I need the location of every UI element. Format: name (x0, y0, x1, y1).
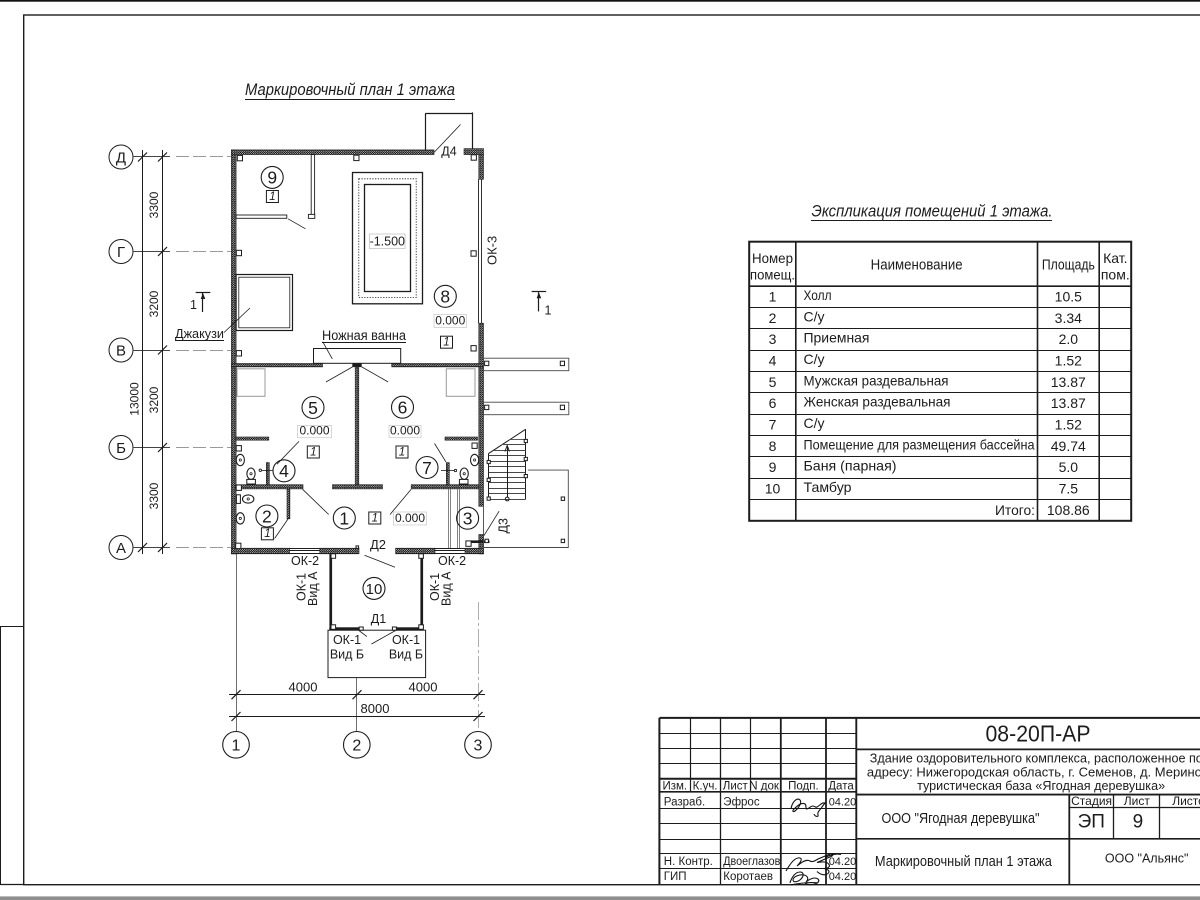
svg-text:9: 9 (1133, 812, 1144, 833)
svg-text:1: 1 (264, 528, 270, 540)
svg-text:4000: 4000 (409, 679, 438, 694)
svg-text:3300: 3300 (147, 482, 161, 509)
svg-text:Джакузи: Джакузи (175, 327, 224, 341)
svg-text:3200: 3200 (147, 290, 161, 317)
svg-text:3: 3 (769, 331, 777, 347)
svg-text:04.20: 04.20 (829, 871, 857, 883)
svg-text:ГИП: ГИП (664, 871, 687, 883)
svg-text:0.000: 0.000 (435, 314, 465, 328)
svg-text:10.5: 10.5 (1055, 289, 1082, 305)
svg-text:7: 7 (769, 416, 777, 432)
svg-text:Мужская раздевальная: Мужская раздевальная (804, 372, 949, 388)
svg-text:Тамбур: Тамбур (804, 479, 852, 495)
svg-text:13000: 13000 (128, 382, 142, 416)
svg-text:04.20: 04.20 (829, 797, 857, 809)
svg-text:Г: Г (117, 244, 125, 261)
svg-text:6: 6 (769, 395, 777, 411)
svg-text:Наименование: Наименование (871, 257, 963, 274)
svg-text:Д3: Д3 (497, 518, 511, 533)
svg-text:04.20: 04.20 (829, 856, 857, 868)
svg-text:6: 6 (398, 398, 408, 418)
svg-text:Разраб.: Разраб. (664, 797, 705, 809)
svg-text:2: 2 (262, 506, 272, 526)
svg-text:Эфрос: Эфрос (723, 797, 760, 809)
svg-text:-1.500: -1.500 (370, 235, 405, 249)
svg-text:Номер: Номер (752, 250, 793, 266)
svg-text:1.52: 1.52 (1055, 416, 1082, 432)
svg-text:Б: Б (116, 440, 126, 457)
svg-text:0.000: 0.000 (299, 424, 329, 438)
svg-text:10: 10 (366, 581, 383, 598)
svg-text:пом.: пом. (1101, 267, 1130, 283)
svg-text:5: 5 (769, 374, 777, 390)
svg-text:1: 1 (339, 508, 349, 528)
svg-text:Подп.: Подп. (788, 780, 819, 792)
svg-text:Маркировочный план 1 этажа: Маркировочный план 1 этажа (245, 80, 455, 99)
svg-text:Д1: Д1 (371, 612, 386, 626)
svg-text:49.74: 49.74 (1051, 438, 1086, 454)
svg-text:1: 1 (769, 289, 777, 305)
svg-text:С/у: С/у (804, 415, 825, 431)
svg-text:3200: 3200 (147, 386, 161, 413)
svg-text:Дата: Дата (828, 780, 854, 792)
svg-text:5: 5 (308, 398, 318, 418)
svg-text:Лист: Лист (723, 780, 749, 792)
svg-text:N док.: N док. (749, 780, 782, 792)
svg-text:8: 8 (440, 287, 450, 307)
svg-text:Помещение для размещения бассе: Помещение для размещения бассейна (804, 436, 1035, 452)
svg-text:Д4: Д4 (441, 144, 456, 158)
svg-text:10: 10 (765, 480, 781, 496)
svg-text:2.0: 2.0 (1059, 331, 1079, 347)
svg-text:К.уч.: К.уч. (693, 780, 718, 792)
svg-text:Н. Контр.: Н. Контр. (664, 856, 713, 868)
svg-text:Вид А: Вид А (440, 571, 454, 606)
svg-text:3.34: 3.34 (1055, 310, 1082, 326)
svg-text:1: 1 (545, 304, 552, 318)
svg-text:Баня (парная): Баня (парная) (804, 458, 897, 474)
svg-text:В: В (116, 342, 126, 359)
svg-text:Д2: Д2 (370, 537, 386, 552)
svg-text:Площадь: Площадь (1042, 257, 1095, 274)
svg-text:С/у: С/у (804, 308, 825, 324)
svg-text:3: 3 (463, 509, 473, 529)
svg-text:7: 7 (422, 458, 432, 478)
svg-text:1: 1 (190, 298, 197, 312)
svg-text:туристическая база «Ягодная де: туристическая база «Ягодная деревушка» (917, 778, 1165, 793)
svg-text:3: 3 (474, 738, 483, 755)
svg-text:Коротаев: Коротаев (723, 871, 773, 883)
svg-text:1: 1 (232, 738, 241, 755)
svg-text:1: 1 (443, 337, 449, 349)
svg-text:Кат.: Кат. (1103, 250, 1127, 266)
svg-text:ООО "Ягодная деревушка": ООО "Ягодная деревушка" (882, 810, 1040, 827)
svg-text:9: 9 (267, 168, 277, 188)
svg-text:С/у: С/у (804, 351, 825, 367)
svg-text:Вид Б: Вид Б (389, 647, 423, 661)
svg-text:ЭП: ЭП (1078, 812, 1105, 833)
svg-text:2: 2 (769, 310, 777, 326)
svg-text:А: А (116, 540, 126, 557)
svg-text:1: 1 (310, 446, 316, 458)
svg-text:5.0: 5.0 (1059, 459, 1079, 475)
svg-text:Маркировочный план 1 этажа: Маркировочный план 1 этажа (875, 853, 1053, 870)
svg-text:8000: 8000 (361, 701, 390, 716)
svg-text:ОК-2: ОК-2 (438, 554, 466, 568)
svg-text:8: 8 (769, 438, 777, 454)
svg-text:08-20П-АР: 08-20П-АР (986, 720, 1091, 746)
svg-text:Д: Д (116, 149, 126, 166)
svg-text:9: 9 (769, 459, 777, 475)
svg-text:Итого:: Итого: (995, 502, 1035, 518)
svg-text:помещ.: помещ. (750, 267, 795, 283)
svg-text:ОК-1: ОК-1 (333, 633, 361, 647)
svg-text:ОК-1: ОК-1 (392, 633, 420, 647)
svg-text:0.000: 0.000 (395, 511, 425, 525)
svg-text:13.87: 13.87 (1051, 374, 1086, 390)
svg-text:Холл: Холл (804, 287, 832, 303)
svg-text:Женская раздевальная: Женская раздевальная (804, 394, 951, 410)
svg-text:108.86: 108.86 (1047, 502, 1090, 518)
svg-text:1.52: 1.52 (1055, 352, 1082, 368)
svg-text:Изм.: Изм. (662, 780, 687, 792)
svg-text:3300: 3300 (147, 191, 161, 218)
svg-text:ОК-3: ОК-3 (485, 236, 500, 265)
svg-text:4: 4 (769, 352, 777, 368)
svg-text:Приемная: Приемная (804, 330, 870, 346)
svg-text:Листов: Листов (1172, 794, 1200, 808)
svg-text:4: 4 (279, 461, 289, 481)
svg-text:Вид А: Вид А (306, 571, 320, 606)
svg-text:7.5: 7.5 (1059, 480, 1079, 496)
svg-text:Здание оздоровительного компле: Здание оздоровительного комплекса, распо… (870, 750, 1200, 765)
svg-text:Стадия: Стадия (1071, 794, 1112, 808)
svg-text:Лист: Лист (1124, 794, 1151, 808)
svg-text:4000: 4000 (289, 679, 318, 694)
svg-text:1: 1 (372, 512, 378, 524)
svg-text:1: 1 (269, 191, 275, 203)
svg-text:Двоеглазов: Двоеглазов (723, 856, 780, 868)
svg-text:1: 1 (399, 446, 405, 458)
svg-text:ООО "Альянс": ООО "Альянс" (1105, 851, 1189, 865)
svg-text:Экспликация помещений 1 этажа.: Экспликация помещений 1 этажа. (812, 203, 1053, 221)
svg-text:Ножная ванна: Ножная ванна (322, 328, 406, 343)
svg-text:Вид Б: Вид Б (330, 647, 364, 661)
svg-text:ОК-2: ОК-2 (291, 554, 319, 568)
svg-text:13.87: 13.87 (1051, 395, 1086, 411)
svg-text:2: 2 (352, 738, 361, 755)
svg-text:0.000: 0.000 (390, 424, 420, 438)
